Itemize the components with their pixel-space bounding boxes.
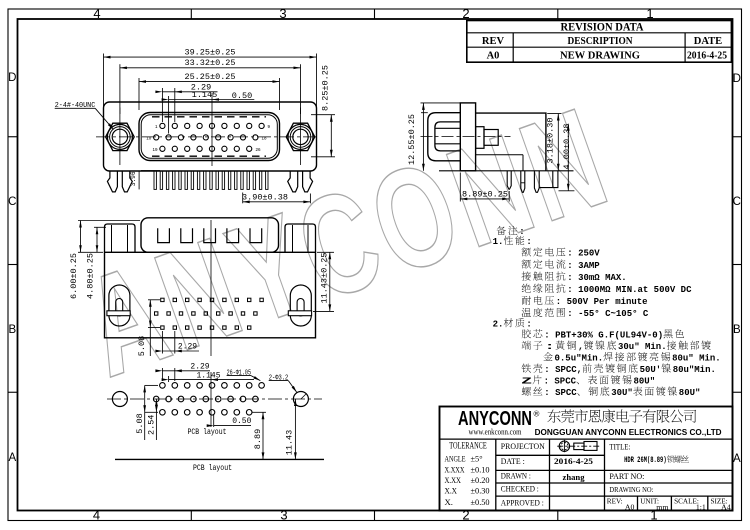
svg-text:80U": 80U" <box>679 388 701 398</box>
svg-text:CHECKED :: CHECKED : <box>501 484 539 494</box>
svg-text:26: 26 <box>256 147 262 152</box>
svg-text:DESCRIPTION: DESCRIPTION <box>568 36 633 47</box>
svg-text:®: ® <box>534 410 540 419</box>
svg-text:8.89±0.25: 8.89±0.25 <box>462 189 508 199</box>
svg-text:4.80±0.25: 4.80±0.25 <box>85 253 95 299</box>
svg-text:ANGLE: ANGLE <box>445 454 466 463</box>
svg-text:: 1000MΩ MIN.at 500V DC: : 1000MΩ MIN.at 500V DC <box>567 285 692 295</box>
svg-text:30U": 30U" <box>611 388 633 398</box>
svg-text:A: A <box>8 452 16 464</box>
svg-text:0.50: 0.50 <box>232 91 252 101</box>
svg-text:2016-4-25: 2016-4-25 <box>554 457 593 466</box>
svg-text:DRAWN :: DRAWN : <box>501 471 531 481</box>
svg-text:PART NO:: PART NO: <box>609 471 644 481</box>
svg-text:zhang: zhang <box>563 473 586 482</box>
svg-text:2.29: 2.29 <box>178 342 197 351</box>
svg-text:HDR 26M(8.89): HDR 26M(8.89) <box>624 455 667 465</box>
svg-text:18: 18 <box>262 135 268 140</box>
svg-text:19: 19 <box>152 147 158 152</box>
svg-text:±0.20: ±0.20 <box>471 476 490 485</box>
svg-text:X.: X. <box>445 498 454 507</box>
svg-text:: SPCC: : SPCC <box>544 377 577 387</box>
svg-text:PCB layout: PCB layout <box>193 463 232 473</box>
svg-text:APPROVED :: APPROVED : <box>501 498 544 508</box>
svg-text:mm: mm <box>656 503 668 512</box>
svg-text:: SPCC: : SPCC <box>544 388 577 398</box>
svg-text:11.43: 11.43 <box>284 430 294 456</box>
svg-text:1.145: 1.145 <box>196 371 220 380</box>
svg-text:REV: REV <box>482 36 505 47</box>
svg-text:80u"Min.: 80u"Min. <box>673 365 716 375</box>
svg-text:±0.10: ±0.10 <box>471 466 490 475</box>
svg-text:8.89: 8.89 <box>253 429 263 449</box>
svg-text:Z: Z <box>521 377 532 387</box>
svg-text:D: D <box>733 73 741 85</box>
svg-text:: 30mΩ MAX.: : 30mΩ MAX. <box>567 273 626 283</box>
svg-text:2-Φ3.2: 2-Φ3.2 <box>269 374 289 382</box>
svg-text:3: 3 <box>279 6 286 21</box>
svg-text:4: 4 <box>93 6 100 21</box>
svg-text:DONGGUAN ANYCONN ELECTRONICS C: DONGGUAN ANYCONN ELECTRONICS CO.,LTD <box>535 428 722 437</box>
svg-text:10: 10 <box>146 135 152 140</box>
svg-text::: : <box>526 237 531 247</box>
svg-text:DRAWING NO:: DRAWING NO: <box>609 486 653 494</box>
svg-text:8.25±0.25: 8.25±0.25 <box>321 65 331 111</box>
svg-text:±0.30: ±0.30 <box>471 487 490 496</box>
svg-text:2.29: 2.29 <box>190 362 209 371</box>
svg-text:33.32±0.25: 33.32±0.25 <box>184 58 235 68</box>
svg-text:www.enkconn.com: www.enkconn.com <box>469 428 523 437</box>
svg-text:1: 1 <box>646 6 653 21</box>
svg-text:A: A <box>733 453 741 465</box>
svg-text:,: , <box>578 342 583 352</box>
svg-text:2016-4-25: 2016-4-25 <box>687 51 727 62</box>
svg-text:2-4#-40UNC: 2-4#-40UNC <box>55 102 96 110</box>
svg-text:4: 4 <box>93 508 100 523</box>
svg-text:1:1: 1:1 <box>696 503 706 512</box>
svg-text:TOLERANCE: TOLERANCE <box>449 441 487 451</box>
svg-text:DATE: DATE <box>694 36 722 47</box>
svg-text:X.X: X.X <box>445 487 458 496</box>
svg-text:3.18±0.30: 3.18±0.30 <box>546 118 556 164</box>
svg-text:80u" Min.: 80u" Min. <box>672 354 721 364</box>
svg-text:12.55±0.25: 12.55±0.25 <box>407 114 417 165</box>
svg-text::: : <box>526 320 531 330</box>
svg-text:C: C <box>733 196 741 208</box>
svg-text:3.90±0.38: 3.90±0.38 <box>242 192 288 202</box>
svg-text:: 3AMP: : 3AMP <box>567 261 600 271</box>
svg-text:1.145: 1.145 <box>192 90 218 100</box>
svg-text:REVISION DATA: REVISION DATA <box>561 20 644 34</box>
svg-text:A0: A0 <box>625 503 635 512</box>
svg-text:±0.50: ±0.50 <box>471 498 490 507</box>
svg-text:25.25±0.25: 25.25±0.25 <box>184 72 235 82</box>
svg-text:PCB layout: PCB layout <box>188 427 227 437</box>
svg-text:11.43±0.25: 11.43±0.25 <box>320 252 330 303</box>
svg-text:1.: 1. <box>493 237 504 247</box>
svg-text:3.96: 3.96 <box>130 171 137 186</box>
svg-text:REV:: REV: <box>607 498 623 506</box>
svg-text:2: 2 <box>462 6 469 21</box>
svg-text:PROJECTON: PROJECTON <box>501 441 546 451</box>
svg-text:DATE :: DATE : <box>501 456 525 466</box>
svg-text:A4: A4 <box>721 503 731 512</box>
svg-text:6.00±0.25: 6.00±0.25 <box>69 253 79 299</box>
svg-text:A0: A0 <box>487 51 500 62</box>
svg-text:NEW DRAWING: NEW DRAWING <box>560 51 640 62</box>
svg-text::: : <box>544 342 555 352</box>
svg-text:26-Φ1.05: 26-Φ1.05 <box>227 369 251 377</box>
svg-text:30u" Min.: 30u" Min. <box>618 342 667 352</box>
svg-text:80U": 80U" <box>634 377 656 387</box>
svg-text:: PBT+30% G.F(UL94V-0): : PBT+30% G.F(UL94V-0) <box>544 331 663 341</box>
svg-text:: 500V Per minute: : 500V Per minute <box>556 297 648 307</box>
svg-text:X.XXX: X.XXX <box>445 466 465 475</box>
svg-text:D: D <box>8 72 16 84</box>
svg-text::: : <box>519 227 524 237</box>
svg-text:5.08: 5.08 <box>137 336 147 356</box>
svg-text:B: B <box>8 324 16 336</box>
svg-text:0.50: 0.50 <box>232 417 251 426</box>
svg-text:2.54: 2.54 <box>147 415 157 435</box>
svg-text:2.: 2. <box>493 320 504 330</box>
svg-text:C: C <box>8 196 16 208</box>
svg-text:50U': 50U' <box>640 365 662 375</box>
svg-text:X.XX: X.XX <box>445 476 462 485</box>
svg-text:: 250V: : 250V <box>567 249 600 259</box>
svg-text:B: B <box>733 324 741 336</box>
svg-text:: SPCC,: : SPCC, <box>544 365 582 375</box>
svg-text:: -55° C~105° C: : -55° C~105° C <box>567 309 649 319</box>
svg-text:TITLE:: TITLE: <box>609 441 630 451</box>
svg-text:39.25±0.25: 39.25±0.25 <box>184 47 235 57</box>
svg-text:±5°: ±5° <box>471 454 483 463</box>
svg-text:0.5u"Min.: 0.5u"Min. <box>555 354 604 364</box>
svg-text:5.08: 5.08 <box>135 413 145 433</box>
svg-text:4.00±0.38: 4.00±0.38 <box>562 124 572 170</box>
svg-text:3: 3 <box>280 508 287 523</box>
